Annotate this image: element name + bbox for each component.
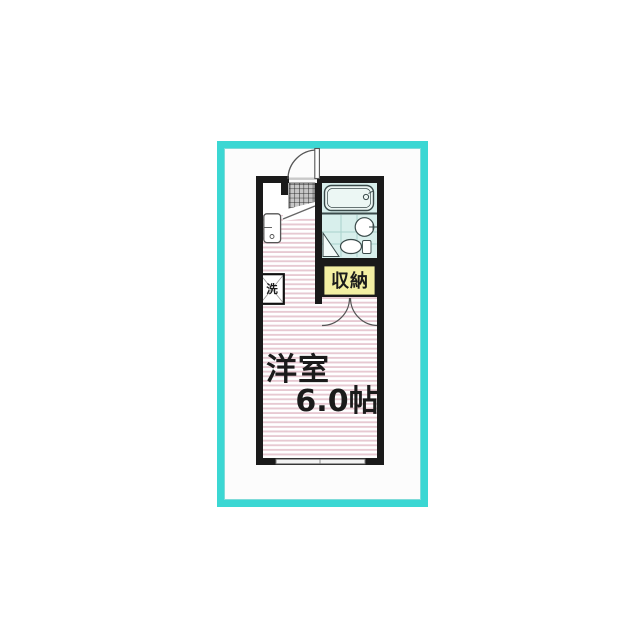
floorplan-image: 収納 洗 洋室 6.0帖: [0, 0, 640, 640]
main-room-size: 6.0帖: [295, 384, 378, 419]
washing-machine-space: 洗: [260, 274, 284, 304]
entrance-stub-wall: [281, 176, 288, 195]
wall-bath-closet: [315, 258, 377, 264]
toilet-icon: [341, 240, 372, 254]
entrance-threshold: [289, 178, 317, 180]
closet-label: 収納: [331, 270, 369, 292]
bathroom: [322, 183, 377, 258]
bathtub-icon: [325, 186, 374, 211]
main-room-label: 洋室: [266, 352, 330, 388]
laundry-label: 洗: [266, 282, 278, 296]
window-icon: [276, 459, 365, 464]
floorplan-svg: 収納 洗 洋室 6.0帖: [0, 0, 640, 640]
wall-hall-bath: [315, 183, 322, 304]
sink-unit-icon: [264, 214, 281, 243]
